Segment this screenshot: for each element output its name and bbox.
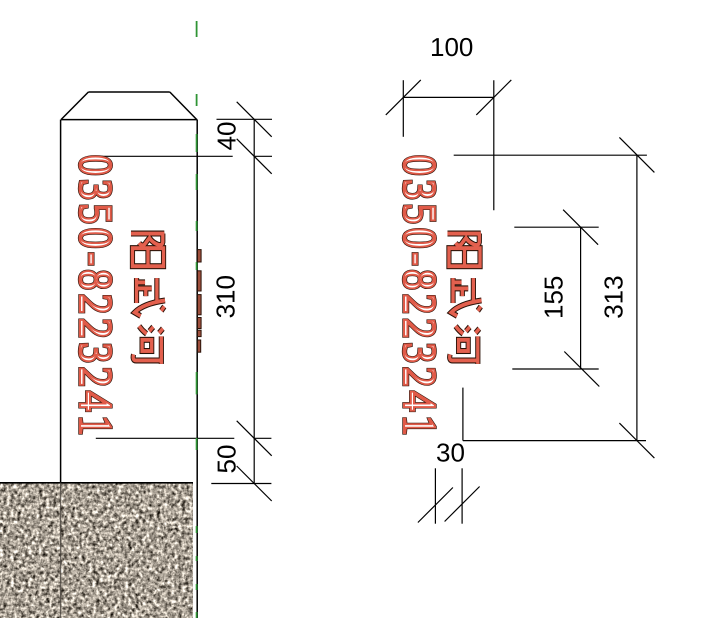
- svg-text:50: 50: [212, 445, 242, 474]
- svg-text:30: 30: [436, 438, 465, 468]
- svg-text:310: 310: [210, 275, 240, 318]
- svg-text:100: 100: [430, 32, 473, 62]
- svg-text:0350-8223241: 0350-8223241: [393, 155, 445, 439]
- svg-text:313: 313: [599, 275, 629, 318]
- svg-text:40: 40: [212, 122, 242, 151]
- svg-text:155: 155: [539, 276, 569, 319]
- svg-text:0350-8223241: 0350-8223241: [69, 155, 121, 439]
